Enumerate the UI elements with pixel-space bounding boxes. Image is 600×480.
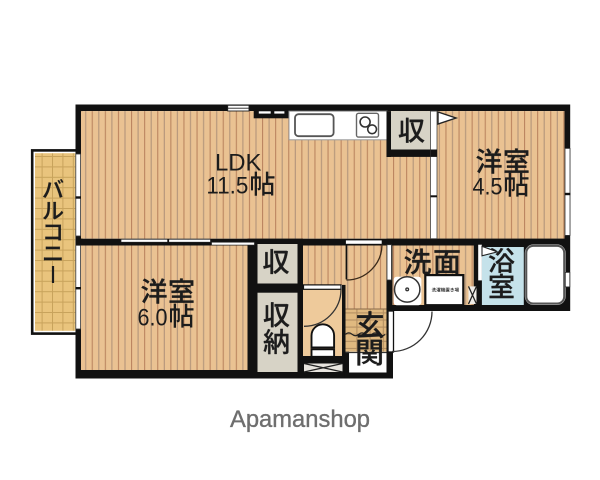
- svg-text:11.5: 11.5: [206, 173, 248, 200]
- svg-text:Apamanshop: Apamanshop: [230, 406, 370, 433]
- svg-text:4.5: 4.5: [473, 174, 503, 201]
- svg-text:6.0: 6.0: [138, 305, 168, 332]
